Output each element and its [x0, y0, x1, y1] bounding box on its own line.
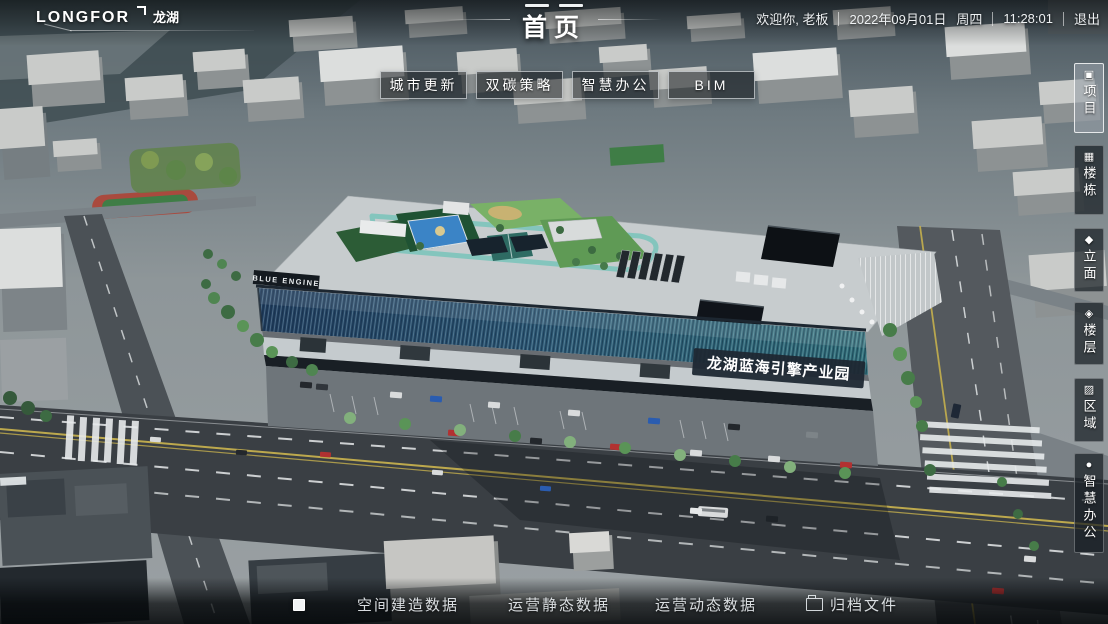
sidebar-item-floors[interactable]: ◈ 楼层	[1074, 302, 1104, 365]
building-icon: ▦	[1084, 152, 1094, 163]
title-decoration-dashes	[522, 4, 586, 7]
tab-label: 运营动态数据	[655, 594, 757, 615]
sidebar-item-label: 区域	[1080, 399, 1099, 433]
tab-label: 归档文件	[830, 594, 898, 615]
page-title-block: 首页	[522, 4, 586, 44]
weekday-text: 周四	[956, 9, 982, 28]
bim-button[interactable]: BIM	[668, 71, 755, 99]
sidebar-item-label: 项目	[1080, 84, 1099, 118]
view-mode-sidebar: ▣ 项目 ▦ 楼栋 ◆ 立面 ◈ 楼层 ▨ 区域 ● 智慧办公	[1074, 63, 1106, 553]
folder-icon	[806, 598, 823, 611]
tab-label: 空间建造数据	[357, 594, 459, 615]
separator	[992, 12, 993, 26]
title-wing-right	[598, 19, 662, 20]
dashboard-window: BLUE ENGINE 龙湖蓝海引擎产业园	[0, 0, 1108, 624]
sidebar-item-label: 楼层	[1080, 323, 1099, 357]
project-icon: ▣	[1084, 70, 1094, 81]
welcome-text: 欢迎你, 老板	[756, 9, 828, 28]
date-text: 2022年09月01日	[849, 9, 946, 28]
area-icon: ▨	[1084, 385, 1094, 396]
logo-underline	[44, 24, 254, 36]
tab-operation-static-data[interactable]: 运营静态数据	[508, 594, 610, 615]
tab-space-construction-data[interactable]: 空间建造数据	[357, 594, 459, 615]
square-marker-icon[interactable]	[293, 599, 305, 611]
sidebar-item-project[interactable]: ▣ 项目	[1074, 63, 1104, 133]
header-status-bar: 欢迎你, 老板 2022年09月01日 周四 11:28:01 退出	[756, 9, 1100, 28]
separator	[1063, 12, 1064, 26]
logout-button[interactable]: 退出	[1074, 9, 1100, 28]
floors-icon: ◈	[1085, 309, 1093, 320]
smart-office-button[interactable]: 智慧办公	[572, 71, 659, 99]
sidebar-item-label: 楼栋	[1080, 166, 1099, 200]
logo-corner-mark-icon	[137, 6, 146, 15]
tab-label: 运营静态数据	[508, 594, 610, 615]
bottom-nav-bar: 空间建造数据 运营静态数据 运营动态数据 归档文件	[0, 578, 1108, 624]
smart-office-icon: ●	[1086, 460, 1093, 471]
sidebar-item-label: 立面	[1080, 249, 1099, 283]
page-title: 首页	[522, 8, 586, 44]
quick-nav: 城市更新 双碳策略 智慧办公 BIM	[380, 71, 755, 99]
tab-operation-dynamic-data[interactable]: 运营动态数据	[655, 594, 757, 615]
sidebar-item-area[interactable]: ▨ 区域	[1074, 378, 1104, 442]
facade-icon: ◆	[1085, 235, 1093, 246]
sidebar-item-label: 智慧办公	[1080, 474, 1099, 542]
urban-renewal-button[interactable]: 城市更新	[380, 71, 467, 99]
clock-text: 11:28:01	[1003, 11, 1053, 26]
sidebar-item-smart-office[interactable]: ● 智慧办公	[1074, 453, 1104, 553]
billboard	[0, 477, 26, 486]
bus	[698, 506, 729, 518]
sidebar-item-building[interactable]: ▦ 楼栋	[1074, 145, 1104, 215]
dual-carbon-button[interactable]: 双碳策略	[476, 71, 563, 99]
sidebar-item-facade[interactable]: ◆ 立面	[1074, 228, 1104, 292]
hero-building: BLUE ENGINE 龙湖蓝海引擎产业园	[252, 196, 942, 468]
separator	[838, 12, 839, 26]
tab-archived-files[interactable]: 归档文件	[806, 594, 898, 615]
title-wing-left	[446, 19, 510, 20]
